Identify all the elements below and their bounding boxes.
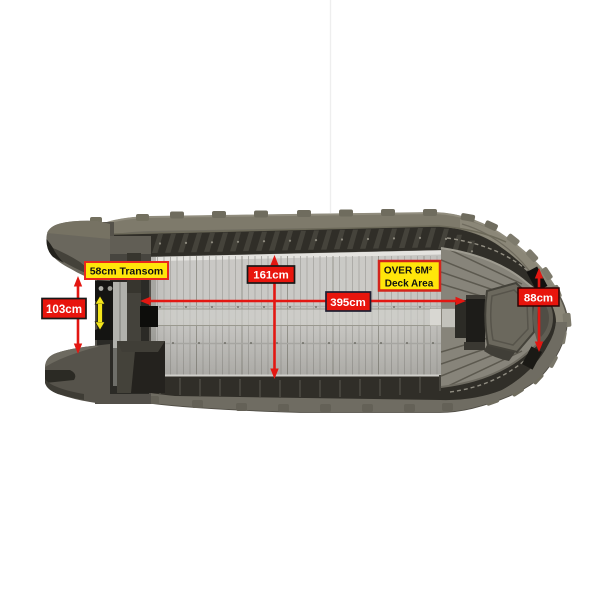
svg-text:58cm Transom: 58cm Transom <box>90 266 164 278</box>
svg-text:Deck Area: Deck Area <box>385 279 434 290</box>
svg-text:161cm: 161cm <box>253 270 288 282</box>
svg-text:OVER 6M²: OVER 6M² <box>384 266 433 277</box>
svg-text:88cm: 88cm <box>524 293 553 305</box>
svg-text:103cm: 103cm <box>46 303 82 316</box>
svg-text:395cm: 395cm <box>330 297 365 309</box>
